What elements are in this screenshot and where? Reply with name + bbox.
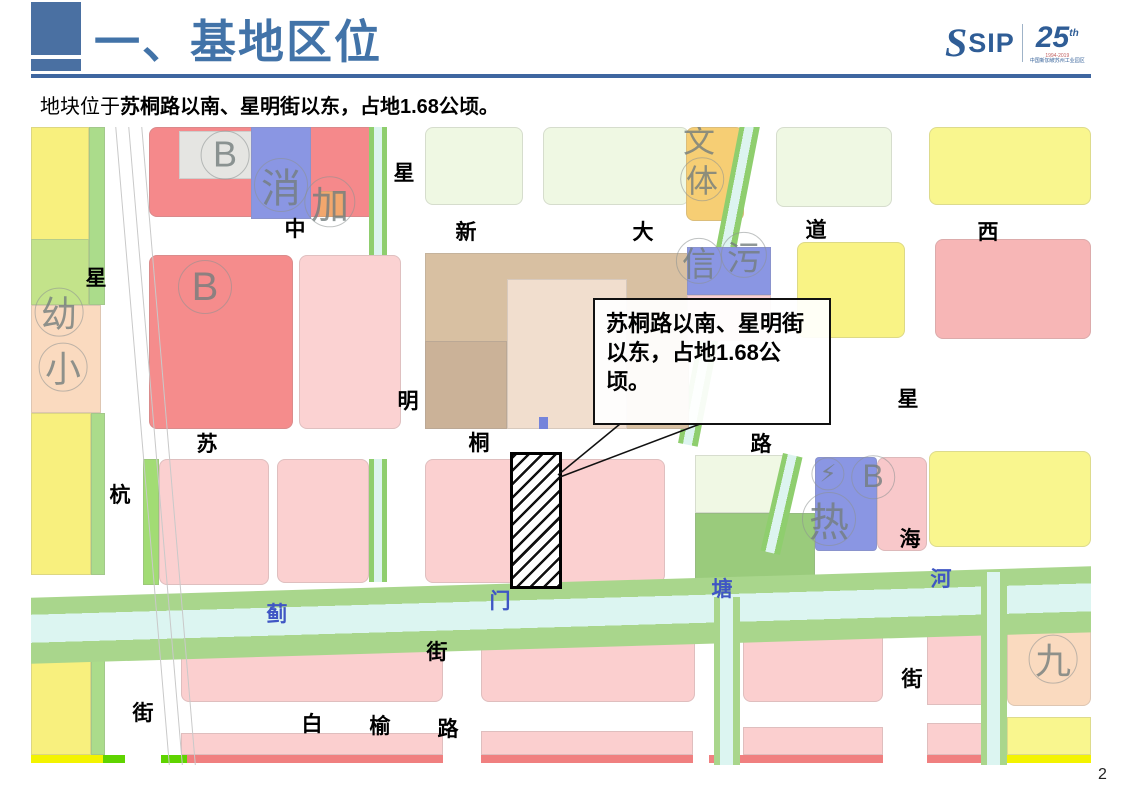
road-label: 大 bbox=[633, 216, 654, 246]
map-parcel bbox=[425, 341, 507, 429]
road-label: 西 bbox=[978, 216, 999, 246]
canal bbox=[981, 572, 1007, 765]
subtitle-prefix: 地块位于 bbox=[40, 96, 120, 118]
facility-label: 幼 bbox=[35, 288, 84, 337]
sip-logo-text: SIP bbox=[968, 28, 1015, 59]
road-label: 榆 bbox=[370, 710, 391, 740]
facility-label: 热 bbox=[802, 492, 856, 546]
facility-label: B bbox=[851, 455, 895, 499]
page-number: 2 bbox=[1098, 766, 1107, 784]
land-use-map: 中新大道西星杭街星明街苏桐路星海街白榆路 蓟门塘河 BBB消加幼小文体信污热⚡九… bbox=[31, 127, 1091, 765]
map-parcel bbox=[1007, 717, 1091, 755]
sip-swoosh-icon: S bbox=[945, 23, 967, 63]
map-parcel bbox=[695, 455, 783, 513]
road-label: 海 bbox=[900, 523, 921, 553]
road-lane-line bbox=[115, 127, 170, 765]
facility-label: 消 bbox=[254, 158, 308, 212]
map-edge-strip bbox=[31, 755, 103, 763]
road-label: 桐 bbox=[469, 427, 490, 457]
road-label: 白 bbox=[302, 708, 323, 738]
slide: 一、基地区位 S SIP 25th 1994-2019 中国新加坡苏州工业园区 … bbox=[0, 0, 1123, 794]
canal bbox=[369, 459, 387, 582]
map-parcel bbox=[776, 127, 892, 207]
map-parcel bbox=[935, 239, 1091, 339]
sip-logo: S SIP 25th 1994-2019 中国新加坡苏州工业园区 bbox=[945, 18, 1095, 68]
facility-label: 文 bbox=[678, 127, 720, 160]
road-label: 路 bbox=[438, 713, 459, 743]
map-edge-strip bbox=[161, 755, 187, 763]
facility-label: 加 bbox=[304, 176, 355, 227]
canal bbox=[714, 597, 740, 765]
road-label: 新 bbox=[456, 216, 477, 246]
road-label: 杭 bbox=[110, 479, 131, 509]
road-label: 道 bbox=[806, 214, 827, 244]
site-hatched-marker bbox=[510, 452, 562, 589]
water-label: 门 bbox=[490, 585, 511, 615]
anniversary-25-logo: 25th 1994-2019 中国新加坡苏州工业园区 bbox=[1030, 23, 1085, 64]
facility-label: 污 bbox=[721, 232, 767, 278]
map-parcel bbox=[299, 255, 401, 429]
anniversary-number: 25th bbox=[1036, 23, 1079, 53]
map-edge-strip bbox=[481, 755, 693, 763]
road-label: 星 bbox=[86, 262, 107, 292]
water-label: 河 bbox=[931, 563, 952, 593]
map-edge-strip bbox=[1007, 755, 1091, 763]
subtitle: 地块位于苏桐路以南、星明街以东，占地1.68公顷。 bbox=[40, 90, 499, 119]
title-underline bbox=[31, 74, 1091, 78]
map-marker bbox=[539, 417, 548, 429]
facility-label: 信 bbox=[676, 238, 722, 284]
facility-label: B bbox=[201, 131, 250, 180]
map-parcel bbox=[91, 413, 105, 575]
road-label: 街 bbox=[427, 636, 448, 666]
facility-label: 九 bbox=[1029, 635, 1078, 684]
site-callout: 苏桐路以南、星明街以东，占地1.68公顷。 bbox=[593, 298, 831, 425]
road-label: 街 bbox=[133, 697, 154, 727]
title-decoration-square bbox=[31, 2, 81, 55]
facility-label: 小 bbox=[39, 343, 88, 392]
facility-label: 体 bbox=[680, 157, 724, 201]
water-label: 塘 bbox=[712, 573, 733, 603]
road-label: 苏 bbox=[197, 428, 218, 458]
page-title: 一、基地区位 bbox=[94, 6, 382, 72]
road-label: 路 bbox=[751, 428, 772, 458]
map-edge-strip bbox=[103, 755, 125, 763]
map-parcel bbox=[929, 451, 1091, 547]
map-parcel bbox=[929, 127, 1091, 205]
road-label: 明 bbox=[398, 385, 419, 415]
road-label: 星 bbox=[394, 157, 415, 187]
map-parcel bbox=[543, 127, 689, 205]
map-edge-strip bbox=[927, 755, 985, 763]
road-label: 中 bbox=[285, 213, 306, 243]
map-parcel bbox=[927, 723, 985, 755]
road-label: 星 bbox=[898, 383, 919, 413]
road-lane-line bbox=[128, 127, 183, 765]
map-parcel bbox=[31, 413, 91, 575]
map-parcel bbox=[743, 727, 883, 755]
water-label: 蓟 bbox=[267, 598, 288, 628]
road-label: 街 bbox=[902, 663, 923, 693]
anniversary-org: 中国新加坡苏州工业园区 bbox=[1030, 59, 1085, 64]
subtitle-emphasis: 苏桐路以南、星明街以东，占地1.68公顷。 bbox=[120, 96, 499, 118]
map-edge-strip bbox=[187, 755, 443, 763]
map-parcel bbox=[277, 459, 369, 583]
title-decoration-bar bbox=[31, 59, 81, 71]
map-parcel bbox=[481, 731, 693, 755]
logo-divider bbox=[1022, 24, 1023, 62]
map-parcel bbox=[425, 127, 523, 205]
facility-label: B bbox=[178, 260, 232, 314]
